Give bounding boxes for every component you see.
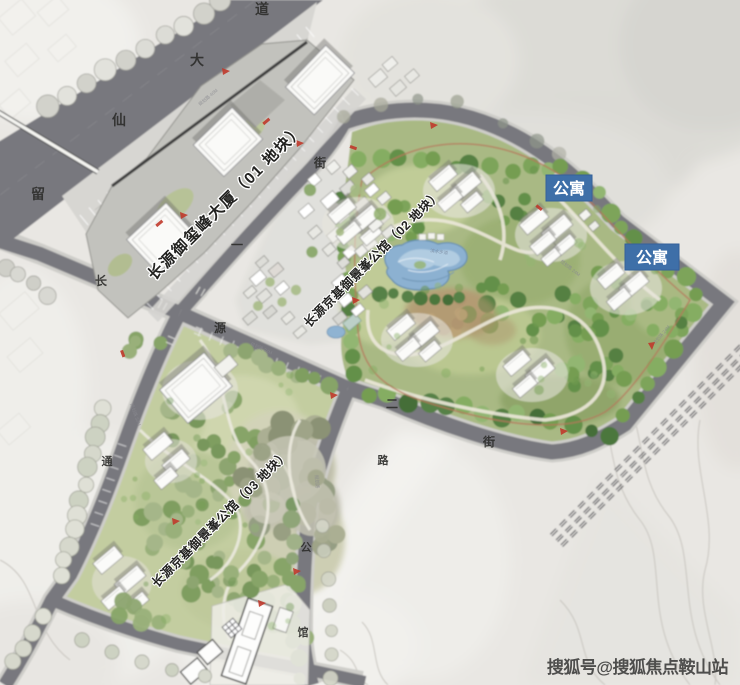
svg-text:通: 通 [102, 455, 113, 468]
svg-text:一: 一 [231, 238, 243, 252]
svg-text:公寓: 公寓 [636, 248, 668, 267]
svg-text:街: 街 [313, 155, 326, 170]
svg-text:道: 道 [255, 1, 269, 17]
svg-text:公: 公 [301, 541, 312, 554]
svg-text:公寓: 公寓 [553, 179, 585, 198]
svg-text:大: 大 [190, 52, 204, 68]
svg-text:源: 源 [214, 320, 226, 335]
svg-text:馆: 馆 [298, 625, 309, 639]
svg-text:留: 留 [31, 186, 45, 202]
svg-text:仙: 仙 [112, 112, 126, 128]
svg-text:街: 街 [482, 434, 495, 449]
svg-text:长: 长 [95, 273, 108, 288]
svg-text:路: 路 [378, 453, 390, 467]
svg-text:搜狐号@搜狐焦点鞍山站: 搜狐号@搜狐焦点鞍山站 [547, 657, 729, 677]
svg-text:二: 二 [386, 397, 398, 411]
